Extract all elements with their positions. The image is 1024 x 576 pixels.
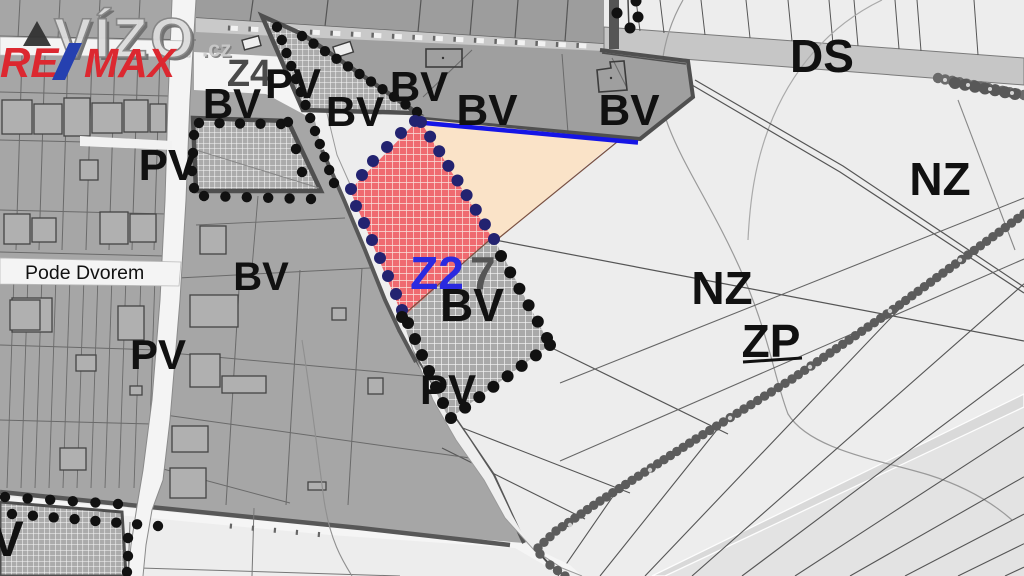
svg-text:V: V (0, 511, 24, 567)
svg-text:BV: BV (390, 63, 448, 110)
svg-text:PV: PV (139, 141, 198, 190)
svg-text:NZ: NZ (909, 153, 970, 205)
svg-text:BV: BV (456, 86, 518, 135)
svg-text:PV: PV (265, 60, 321, 107)
svg-text:BV: BV (203, 80, 261, 127)
svg-text:BV: BV (233, 255, 289, 299)
svg-text:RE: RE (0, 39, 60, 86)
svg-text:.cz: .cz (202, 37, 231, 62)
svg-text:PV: PV (130, 331, 186, 378)
svg-text:BV: BV (440, 279, 504, 331)
svg-text:MAX: MAX (84, 40, 178, 86)
svg-text:NZ: NZ (691, 262, 752, 314)
svg-text:Pode Dvorem: Pode Dvorem (25, 262, 144, 284)
svg-text:BV: BV (326, 88, 384, 135)
svg-text:DS: DS (790, 30, 854, 82)
svg-text:PV: PV (420, 366, 476, 413)
svg-text:BV: BV (598, 86, 660, 135)
